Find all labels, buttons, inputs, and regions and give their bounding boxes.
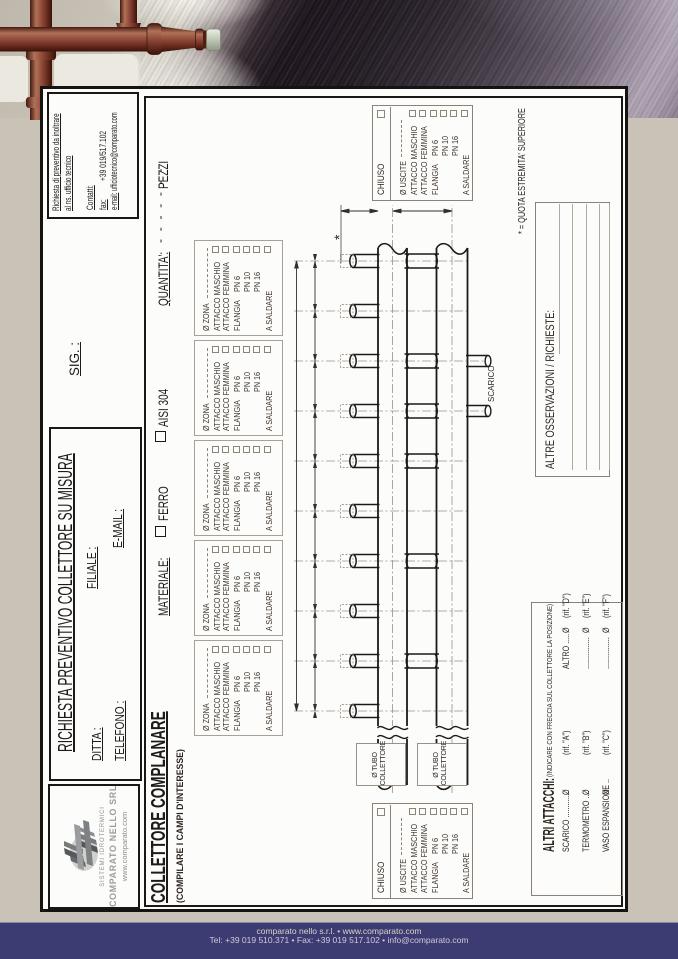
svg-text:SCARICO: SCARICO <box>487 366 496 402</box>
svg-text:*: * <box>331 235 347 241</box>
